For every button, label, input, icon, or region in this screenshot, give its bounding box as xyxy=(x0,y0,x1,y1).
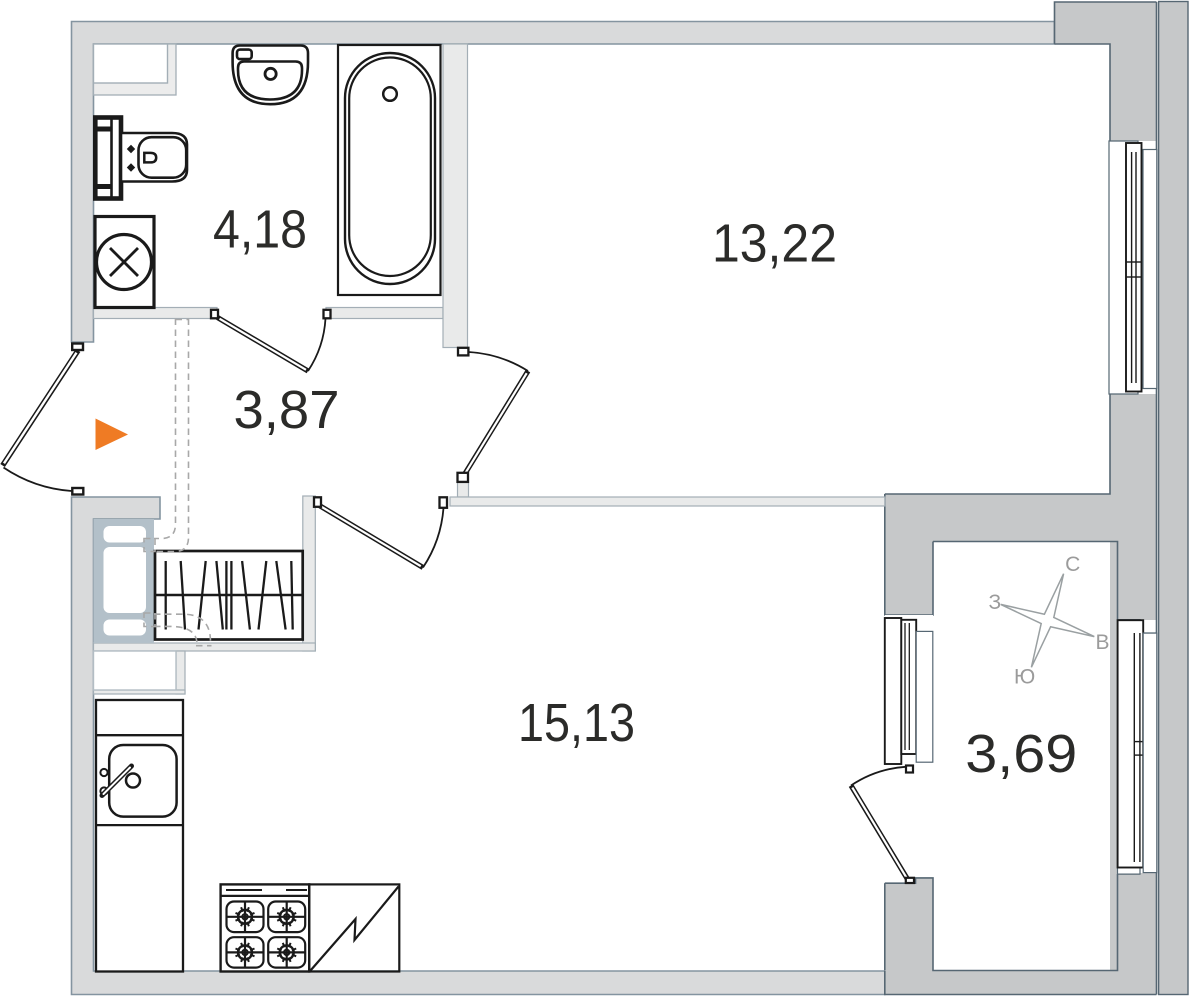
svg-text:13,22: 13,22 xyxy=(712,214,837,274)
svg-text:3,69: 3,69 xyxy=(965,724,1077,784)
svg-text:З: З xyxy=(989,591,1002,614)
svg-text:С: С xyxy=(1065,553,1080,576)
svg-text:Ю: Ю xyxy=(1014,666,1035,689)
svg-text:15,13: 15,13 xyxy=(518,693,635,753)
svg-text:В: В xyxy=(1095,631,1109,654)
svg-text:3,87: 3,87 xyxy=(234,380,340,440)
svg-text:4,18: 4,18 xyxy=(213,200,307,260)
